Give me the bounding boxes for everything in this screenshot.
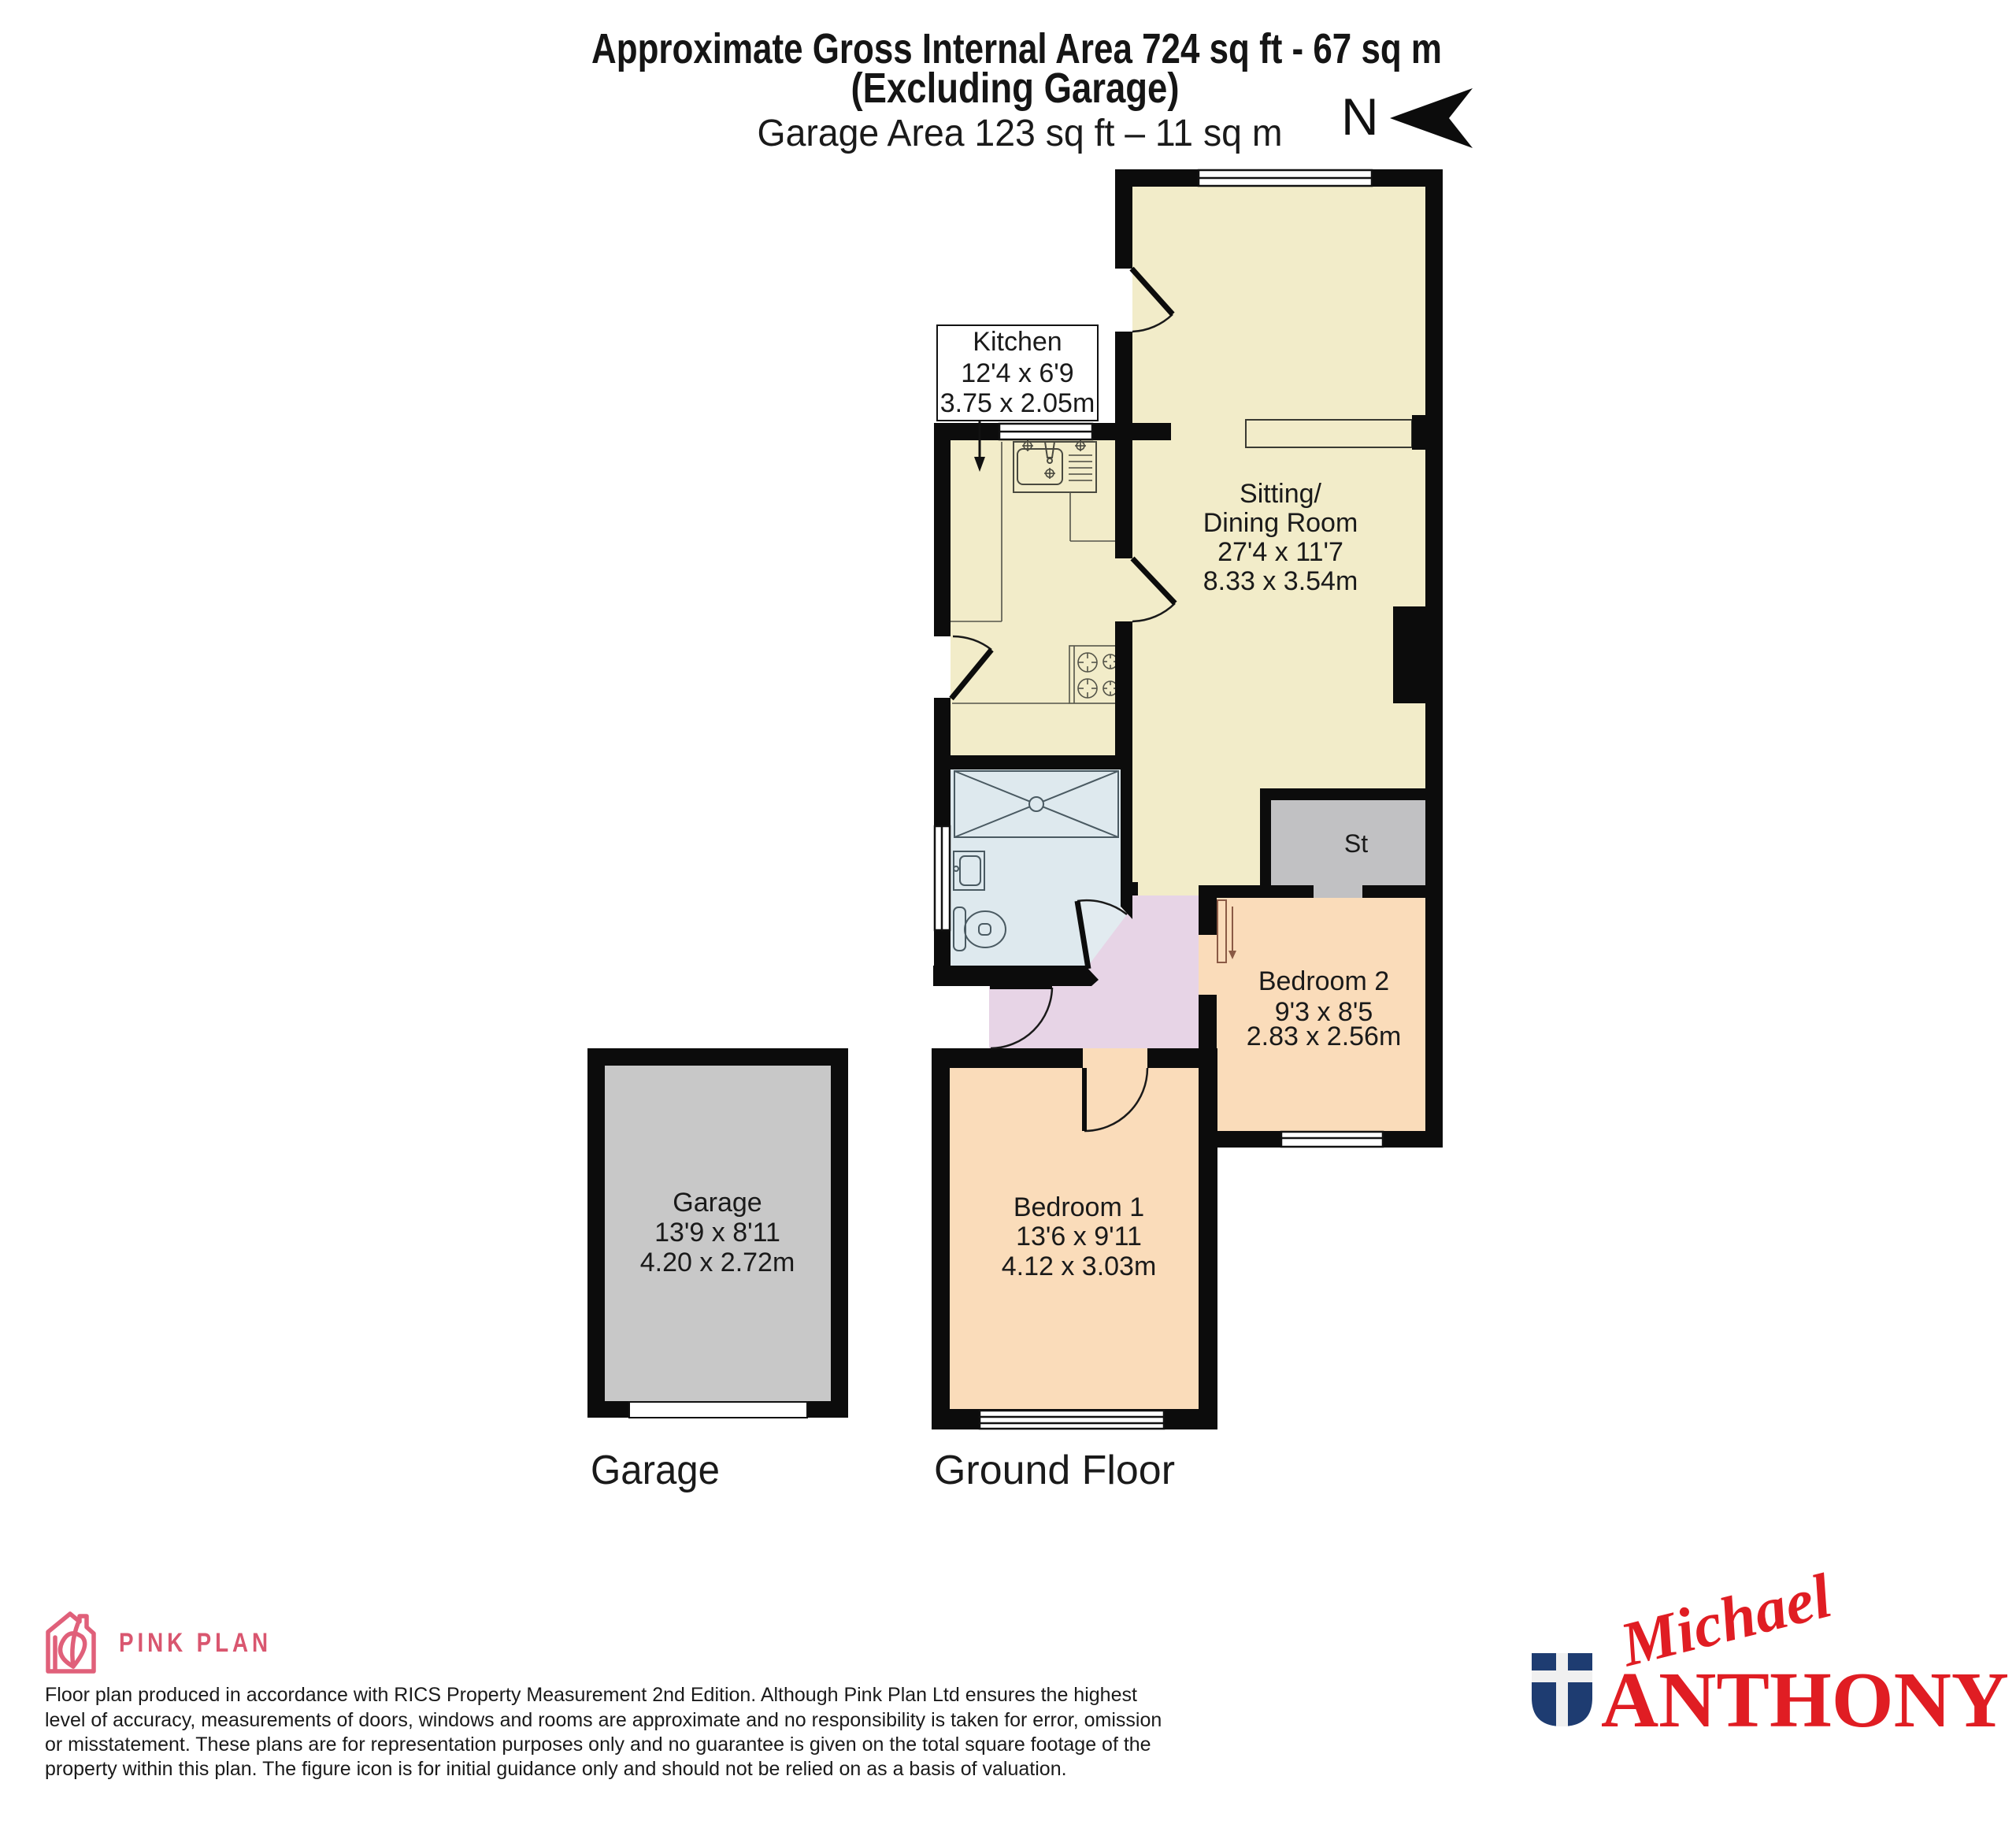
svg-text:2.83 x 2.56m: 2.83 x 2.56m [1247,1022,1402,1051]
svg-text:12'4 x 6'9: 12'4 x 6'9 [961,358,1073,388]
svg-text:3.75 x 2.05m: 3.75 x 2.05m [940,388,1095,418]
svg-text:property within this plan. The: property within this plan. The figure ic… [45,1758,1067,1780]
svg-text:Kitchen: Kitchen [973,327,1062,357]
svg-text:or misstatement. These plans a: or misstatement. These plans are for rep… [45,1733,1151,1756]
svg-text:Garage Area 123 sq ft – 11 sq: Garage Area 123 sq ft – 11 sq m [758,113,1283,154]
svg-text:N: N [1341,87,1379,146]
svg-text:Floor plan produced in accorda: Floor plan produced in accordance with R… [45,1684,1137,1706]
svg-text:Dining Room: Dining Room [1203,508,1358,538]
svg-text:ANTHONY: ANTHONY [1601,1656,2009,1744]
svg-text:Garage: Garage [591,1448,720,1493]
svg-text:Garage: Garage [673,1188,762,1218]
svg-text:PINK PLAN: PINK PLAN [119,1628,272,1658]
svg-text:Bedroom 2: Bedroom 2 [1258,966,1389,996]
svg-text:4.20 x 2.72m: 4.20 x 2.72m [640,1248,795,1277]
svg-text:27'4 x 11'7: 27'4 x 11'7 [1217,537,1343,567]
svg-text:Sitting/: Sitting/ [1240,479,1321,509]
svg-text:13'9 x 8'11: 13'9 x 8'11 [654,1218,780,1248]
svg-text:Ground Floor: Ground Floor [934,1448,1175,1493]
svg-text:13'6 x 9'11: 13'6 x 9'11 [1016,1222,1142,1251]
svg-text:St: St [1344,829,1368,858]
svg-text:8.33 x 3.54m: 8.33 x 3.54m [1203,566,1358,596]
svg-text:(Excluding Garage): (Excluding Garage) [851,65,1180,112]
svg-text:level of accuracy, measurement: level of accuracy, measurements of doors… [45,1709,1162,1731]
svg-text:Bedroom 1: Bedroom 1 [1014,1192,1144,1222]
svg-text:4.12 x 3.03m: 4.12 x 3.03m [1002,1251,1157,1281]
